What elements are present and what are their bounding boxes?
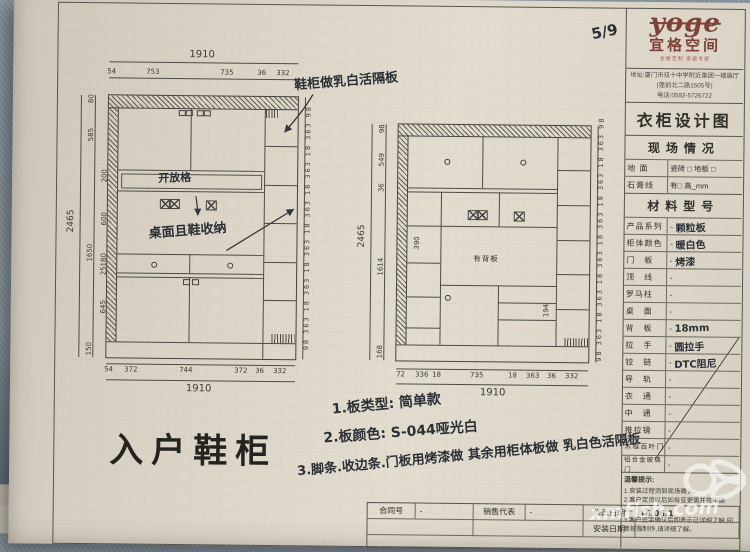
material-label: 桌 面 [624, 303, 667, 319]
material-value: 烤漆 [675, 253, 695, 268]
material-row: 导 轨- [623, 370, 740, 388]
dim-label: 54 [107, 68, 116, 75]
dim-label: 332 [276, 70, 289, 77]
material-section-header: 材料型号 [625, 193, 742, 218]
printed-dash: - [667, 324, 675, 333]
door-handle [183, 279, 190, 285]
material-row: 门 板-烤漆 [624, 251, 741, 269]
dim-label: 2465 [67, 214, 76, 232]
shelf-line [263, 300, 296, 301]
material-label: 顶 线 [624, 269, 667, 285]
drawer-divider [497, 285, 499, 345]
drawing-title: 入户鞋柜 [109, 422, 278, 473]
door-divider [190, 108, 192, 170]
shelf-line [264, 185, 297, 186]
left-hatched-panel [396, 135, 408, 344]
dim-label: 80 [88, 90, 95, 108]
crossed-box-symbol [169, 199, 180, 209]
brand-name: 宜格空间 [626, 34, 743, 56]
dim-label: 150 [86, 340, 93, 358]
crossed-box-symbol [206, 200, 217, 210]
open-shelf-box [121, 173, 262, 189]
printed-dash: - [666, 341, 674, 350]
site-section-header: 现场情况 [625, 135, 742, 160]
dim-label: 54 [104, 366, 113, 373]
shelf-line [556, 240, 589, 241]
material-row: 产品系列-颗粒板 [625, 217, 742, 235]
material-row: 推拉镜- [622, 421, 739, 439]
section-line [117, 190, 264, 193]
material-value: 18mm [674, 323, 709, 335]
material-value: DTC阻尼 [674, 355, 717, 371]
lower-door-divider [188, 277, 190, 342]
dim-label: 1650 [87, 244, 94, 262]
dim-label: 98 [379, 120, 386, 138]
inner-divider [499, 192, 500, 226]
printed-dash: - [666, 409, 674, 418]
material-label: 背 板 [624, 320, 667, 336]
printed-dash: - [667, 256, 675, 265]
printed-dash: - [667, 239, 675, 248]
address-line-1: 地址:厦门市双十中学附近集团一楼展厅 [627, 71, 742, 82]
site-row-label: 地 面 [625, 160, 668, 176]
brand-logo: yoge [627, 10, 744, 37]
dim-label: 36 [255, 368, 264, 375]
material-row: 柜体颜色-暖白色 [624, 234, 741, 252]
footer-label: 销售代表 [474, 504, 526, 521]
left-hatched-panel [106, 107, 118, 341]
material-row: 铰 链-DTC阻尼 [623, 353, 740, 371]
dim-label: 645 [100, 298, 107, 316]
dim-label: 36 [378, 179, 385, 197]
top-hatched-panel [399, 124, 591, 138]
shelf-line [264, 223, 297, 224]
brand-tagline: 全屋定制 家居专家 [626, 55, 743, 63]
watermark-text: xmfish.com [588, 494, 720, 525]
section-line [441, 226, 557, 228]
material-label: 罗马柱 [624, 286, 667, 302]
door-knob [520, 160, 526, 166]
material-label: 导 轨 [623, 371, 666, 387]
brand-address: 地址:厦门市双十中学附近集团一楼展厅 (莲前北二路1505号) 电话:0592-… [626, 68, 743, 103]
material-label: 中 通 [623, 405, 666, 421]
drawer-knob [151, 262, 157, 268]
drawer-line [498, 319, 556, 321]
material-row: 桌 面- [624, 302, 741, 320]
dim-label: 18 [508, 373, 517, 380]
material-label: 铰 链 [623, 354, 666, 370]
printed-dash: - [667, 307, 675, 316]
dim-label: 72 [396, 371, 405, 378]
filler-strip [266, 110, 278, 118]
dim-label: 18 [432, 372, 441, 379]
right-column-divider [555, 137, 558, 346]
dim-label: 549 [379, 151, 386, 169]
footer-value: - [526, 505, 584, 522]
dim-label: 390 [414, 234, 421, 252]
filler-strip [271, 334, 294, 343]
crossed-box-symbol [477, 210, 488, 220]
printed-dash: - [666, 375, 674, 384]
dim-label: 735 [220, 69, 233, 76]
footer-value: - [416, 504, 474, 521]
dim-label: 372 [234, 368, 247, 375]
material-row: 中 通- [623, 404, 740, 422]
material-label: 拉 手 [623, 337, 666, 353]
dim-label: 194 [543, 301, 550, 319]
dim-label: 735 [470, 372, 483, 379]
site-row: 地 面 瓷砖 □ 地板 □ [625, 159, 742, 177]
dim-label: 753 [146, 69, 159, 76]
dim-label: 372 [124, 366, 137, 373]
printed-dash: - [665, 426, 673, 435]
shelf-line [406, 296, 440, 297]
dim-label: 585 [88, 126, 95, 144]
dim-label: 1614 [378, 258, 385, 276]
material-row: 顶 线- [624, 268, 741, 286]
right-cabinet-elevation: 有背板 390 194 2465 98 549 36 1614 168 98 3… [395, 123, 591, 363]
dim-label: 1910 [189, 50, 215, 60]
section-line [407, 191, 557, 194]
site-row-label: 石膏线 [625, 177, 668, 193]
shelf-line [556, 274, 589, 275]
drawer-knob [227, 263, 233, 269]
dim-label: 200 [102, 167, 109, 185]
section-line [407, 187, 557, 190]
section-line [116, 272, 263, 275]
door-handle [204, 110, 211, 116]
dim-label: 168 [377, 343, 384, 361]
shelf-line [557, 170, 590, 171]
back-panel-label: 有背板 [473, 253, 499, 264]
material-value: 圆拉手 [674, 338, 704, 354]
material-label: 衣 通 [623, 388, 666, 404]
material-value: 颗粒板 [675, 219, 705, 235]
dim-label: 36 [257, 70, 266, 77]
phone-line: 电话:0592-5726722 [627, 90, 742, 101]
drawer-divider [189, 254, 190, 273]
dim-label: 1910 [480, 388, 506, 398]
door-handle [186, 110, 193, 116]
dim-label: 25 [101, 262, 108, 280]
drawer-knob [445, 295, 451, 301]
brand-block: yoge 宜格空间 全屋定制 家居专家 [626, 8, 744, 69]
door-knob [444, 159, 450, 165]
dim-label: 332 [565, 373, 578, 380]
dim-label: 1910 [186, 384, 212, 394]
material-row: 衣 通- [623, 387, 740, 405]
footer-cell-empty [473, 520, 583, 537]
shelf-line [263, 262, 296, 263]
shelf-line [407, 225, 441, 226]
filler-strip [564, 338, 588, 346]
printed-dash: - [666, 392, 674, 401]
material-label: 柜体颜色 [624, 235, 667, 251]
dim-label: 36 [547, 373, 556, 380]
dim-label: 600 [101, 210, 108, 228]
site-row-value: 有□ 高_mm [668, 180, 708, 191]
site-row-value: 瓷砖 □ 地板 □ [668, 163, 715, 174]
material-label: 产品系列 [625, 218, 668, 234]
material-value: 暖白色 [675, 236, 705, 252]
footer-label: 合同号 [368, 503, 416, 520]
material-row: 背 板-18mm [624, 319, 741, 337]
printed-dash: - [667, 273, 675, 282]
footer-cell-empty [367, 519, 473, 536]
watermark: xmfish.com [588, 450, 750, 531]
shelf-line [406, 262, 440, 263]
material-row: 拉 手-圆拉手 [623, 336, 740, 354]
left-column-divider [439, 192, 442, 345]
base-line [106, 341, 295, 344]
photo-scene: 1910 54 753 735 36 332 2465 80 585 1650 … [0, 0, 750, 531]
door-handle [192, 279, 199, 285]
dim-label: 363 [526, 373, 539, 380]
material-row: 罗马柱- [624, 285, 741, 303]
material-label: 门 板 [624, 252, 667, 268]
site-row: 石膏线 有□ 高_mm [625, 176, 742, 194]
dim-label: 744 [179, 367, 192, 374]
crossed-box-symbol [514, 212, 525, 222]
handwritten-open-shelf: 开放格 [158, 169, 191, 186]
printed-dash: - [667, 290, 675, 299]
printed-dash: - [666, 358, 674, 367]
printed-dash: - [668, 222, 676, 231]
door-divider [482, 136, 484, 188]
shelf-line [264, 146, 297, 147]
sheet-title: 衣柜设计图 [626, 102, 743, 136]
dim-label: 336 [415, 372, 428, 379]
shelf-line [557, 205, 590, 206]
top-hatched-panel [109, 95, 298, 110]
material-label: 推拉镜 [622, 422, 665, 438]
shelf-line [406, 327, 440, 328]
shelf-line [556, 309, 589, 310]
dim-label: 2465 [358, 229, 367, 247]
dim-label: 332 [273, 368, 286, 375]
base-line [396, 344, 588, 347]
